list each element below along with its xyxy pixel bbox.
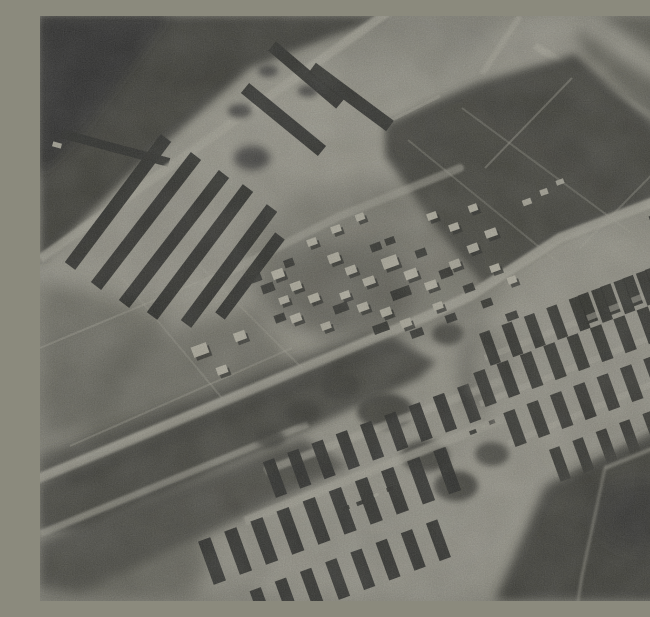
aerial-photograph bbox=[40, 16, 650, 601]
aerial-photograph-canvas bbox=[40, 16, 650, 601]
grain-overlay-light bbox=[40, 16, 650, 601]
